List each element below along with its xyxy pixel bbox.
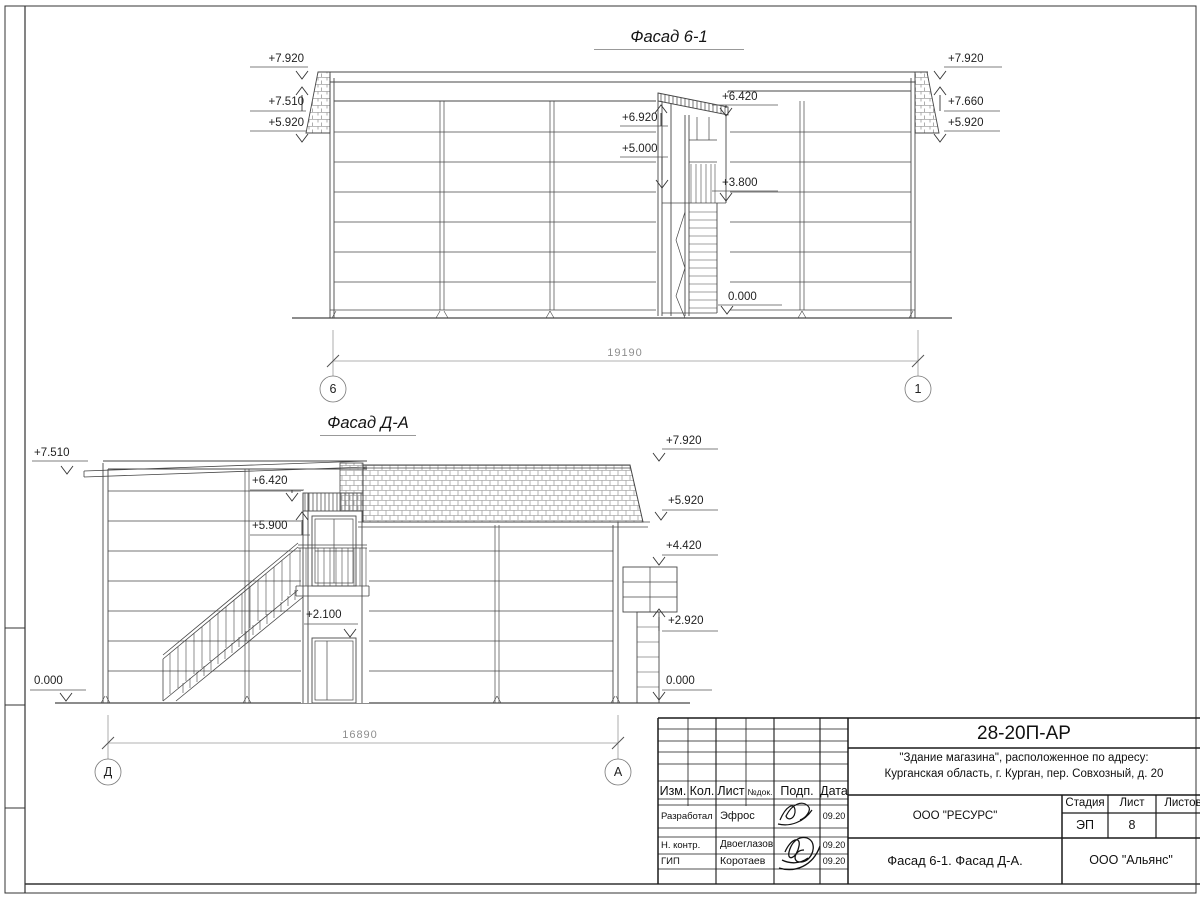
tb-gip-name: Коротаев	[720, 855, 765, 867]
elevation-mark-f1-right-3: +5.920	[948, 117, 984, 130]
tb-col-data: Дата	[820, 784, 848, 798]
signature-developed	[778, 803, 812, 825]
tb-gip-date: 09.20	[820, 856, 848, 866]
elevation-mark-f2-left-top: +7.510	[34, 447, 70, 460]
facade-1-stair-tower	[656, 93, 730, 318]
tb-stage-label: Стадия	[1062, 797, 1108, 809]
dimension-f1: 19190	[575, 347, 675, 359]
elevation-mark-f1-left-1: +7.920	[246, 53, 304, 66]
signature-gip	[779, 837, 820, 869]
tb-developed-date: 09.20	[820, 811, 848, 821]
elevation-mark-f1-mid-upper: +5.000	[622, 143, 658, 156]
facade-2-title: Фасад Д-А	[320, 414, 416, 436]
frame-side-boxes	[5, 628, 25, 808]
facade-2-dimension	[95, 715, 631, 785]
elevation-mark-f1-mid-landing: +3.800	[722, 177, 758, 190]
tb-project-line-1: "Здание магазина", расположенное по адре…	[848, 752, 1200, 764]
elevation-mark-f1-mid-roof: +6.420	[722, 91, 758, 104]
axis-bubble-f2-left: Д	[95, 765, 121, 779]
tb-project-line-2: Курганская область, г. Курган, пер. Совх…	[848, 768, 1200, 780]
dimension-f2: 16890	[315, 729, 405, 741]
signature-marks	[778, 803, 820, 869]
elevation-mark-f1-mid-ground: 0.000	[728, 291, 757, 304]
tb-sheets-label: Листов	[1156, 797, 1200, 809]
tb-ncontrol-role: Н. контр.	[661, 840, 700, 851]
drawing-sheet: Фасад 6-1 +7.920 +7.510 +5.920 +7.920 +7…	[0, 0, 1200, 900]
facade-2-roof	[340, 463, 650, 527]
tb-developed-role: Разработал	[661, 811, 713, 822]
elevation-mark-f2-sign-bottom: +2.920	[668, 615, 704, 628]
elevation-mark-f1-left-2: +7.510	[246, 96, 304, 109]
elevation-mark-f1-left-3: +5.920	[246, 117, 304, 130]
axis-bubble-f1-left: 6	[320, 382, 346, 396]
tb-col-ndok: №док.	[746, 787, 774, 797]
tb-developed-name: Эфрос	[720, 810, 755, 822]
elevation-mark-f2-right-ground: 0.000	[666, 675, 695, 688]
facade-1-title: Фасад 6-1	[594, 28, 744, 50]
tb-sheet-value: 8	[1108, 818, 1156, 832]
tb-stage-value: ЭП	[1062, 818, 1108, 832]
drawing-canvas	[0, 0, 1200, 900]
axis-bubble-f1-right: 1	[905, 382, 931, 396]
tb-sheet-label: Лист	[1108, 797, 1156, 809]
elevation-mark-f2-left-ground: 0.000	[34, 675, 63, 688]
tb-ncontrol-name: Двоеглазов	[720, 839, 773, 850]
elevation-mark-f2-right-top: +7.920	[666, 435, 702, 448]
facade-2-external-stair	[163, 543, 303, 701]
elevation-mark-f2-canopy: +6.420	[252, 475, 288, 488]
tb-col-podp: Подп.	[774, 784, 820, 798]
tb-col-izm: Изм.	[658, 784, 688, 798]
facade-1-elevation-marks	[250, 67, 1002, 314]
elevation-mark-f1-right-1: +7.920	[948, 53, 984, 66]
tb-drawing-title: Фасад 6-1. Фасад Д-А.	[848, 853, 1062, 868]
tb-col-kol: Кол.	[688, 784, 716, 798]
elevation-mark-f2-right-eaves: +5.920	[668, 495, 704, 508]
elevation-mark-f2-lower-door: +2.100	[306, 609, 342, 622]
tb-col-list: Лист	[716, 784, 746, 798]
tb-org-top: ООО "РЕСУРС"	[848, 810, 1062, 822]
tb-gip-role: ГИП	[661, 856, 680, 867]
elevation-mark-f2-door-top: +5.900	[252, 520, 288, 533]
tb-ncontrol-date: 09.20	[820, 840, 848, 850]
facade-2-brick-pillar	[637, 612, 659, 703]
facade-2-signboard	[623, 567, 677, 612]
elevation-mark-f1-mid-top: +6.920	[622, 112, 658, 125]
facade-2-entrance-tower	[296, 491, 369, 703]
tb-org-bottom: ООО "Альянс"	[1062, 853, 1200, 867]
elevation-mark-f2-sign-top: +4.420	[666, 540, 702, 553]
elevation-mark-f1-right-2: +7.660	[948, 96, 984, 109]
facade-1-dimension	[320, 330, 931, 402]
axis-bubble-f2-right: А	[605, 765, 631, 779]
tb-document-code: 28-20П-АР	[848, 723, 1200, 745]
